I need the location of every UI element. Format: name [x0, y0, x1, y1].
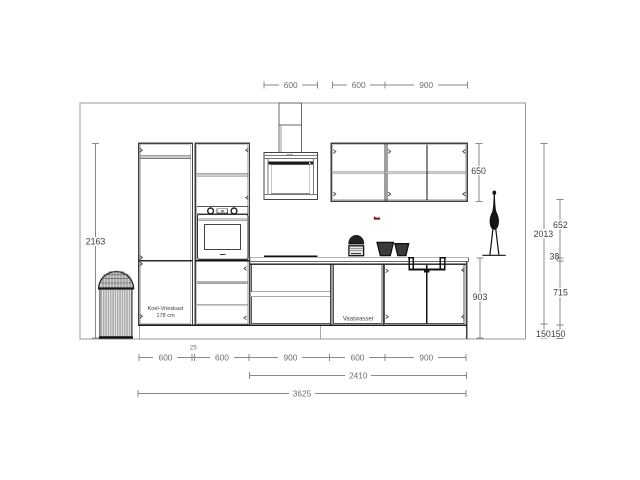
svg-text:2013: 2013 [534, 229, 554, 239]
svg-text:900: 900 [419, 80, 433, 90]
svg-text:178 cm: 178 cm [156, 313, 175, 319]
svg-text:650: 650 [471, 166, 486, 176]
svg-text:25: 25 [190, 344, 198, 351]
svg-text:600: 600 [215, 352, 229, 362]
svg-text:715: 715 [553, 288, 568, 298]
svg-text:150: 150 [551, 329, 566, 339]
svg-text:3625: 3625 [293, 388, 312, 398]
svg-text:Koel-Vrieskast: Koel-Vrieskast [148, 306, 184, 312]
svg-text:600: 600 [351, 352, 365, 362]
svg-text:600: 600 [352, 80, 366, 90]
svg-text:600: 600 [284, 80, 298, 90]
svg-text:600: 600 [159, 352, 173, 362]
svg-text:Vaatwasser: Vaatwasser [343, 316, 374, 322]
svg-text:150: 150 [536, 329, 551, 339]
svg-text:903: 903 [473, 292, 488, 302]
svg-text:38: 38 [550, 252, 560, 262]
svg-text:900: 900 [419, 352, 433, 362]
svg-text:652: 652 [553, 220, 568, 230]
svg-text:2410: 2410 [349, 370, 368, 380]
svg-text:2163: 2163 [86, 237, 106, 247]
svg-text:900: 900 [283, 352, 297, 362]
